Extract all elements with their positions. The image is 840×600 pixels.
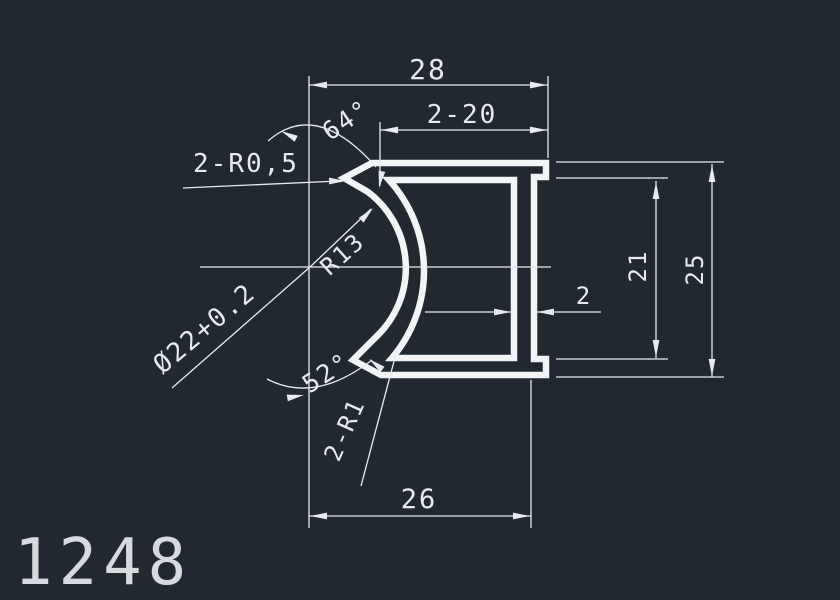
arrowhead: [653, 182, 660, 199]
arrowhead: [287, 392, 305, 402]
arrowhead: [310, 82, 327, 89]
arrowhead: [709, 165, 716, 182]
dim-text-tip-radius: 2-R0,5: [193, 149, 299, 179]
dim-text-bore-diameter: Ø22+0.2: [148, 278, 262, 380]
dim-text-angle-top: 64°: [317, 94, 376, 147]
arrowhead: [494, 309, 511, 316]
arrowhead: [513, 513, 530, 520]
dim-text-bottom-width: 26: [401, 484, 438, 515]
dim-text-total-width: 28: [409, 53, 447, 86]
profile-section: [344, 163, 546, 375]
extension-lines: [380, 76, 724, 528]
dim-text-wall-thickness: 2: [576, 282, 592, 310]
dimension-texts: 28 2-20 64° 2-R0,5 R13 Ø22+0.2 52° 2-R1 …: [148, 53, 709, 515]
dim-text-arc-radius: R13: [315, 227, 370, 281]
dim-text-double-twenty: 2-20: [427, 100, 498, 130]
arrowhead: [530, 82, 547, 89]
arrowhead: [310, 513, 327, 520]
arrowhead: [381, 127, 398, 134]
part-number: 1248: [14, 526, 192, 600]
leader-tip-radius: [183, 181, 339, 188]
arrowhead: [359, 206, 376, 223]
dim-text-total-height: 25: [681, 253, 709, 286]
arrowhead: [653, 340, 660, 357]
arrowhead: [537, 309, 554, 316]
dimension-lines: [309, 85, 712, 516]
cad-viewport[interactable]: 28 2-20 64° 2-R0,5 R13 Ø22+0.2 52° 2-R1 …: [0, 0, 840, 600]
dim-text-double-fillet: 2-R1: [319, 394, 371, 465]
arrowhead: [530, 127, 547, 134]
arrowhead: [279, 128, 297, 142]
leader-lines: [172, 125, 397, 486]
drawing-canvas: 28 2-20 64° 2-R0,5 R13 Ø22+0.2 52° 2-R1 …: [0, 0, 840, 600]
dim-text-angle-bottom: 52°: [297, 347, 356, 399]
arrowhead: [709, 359, 716, 376]
dim-text-inner-height: 21: [624, 250, 652, 283]
